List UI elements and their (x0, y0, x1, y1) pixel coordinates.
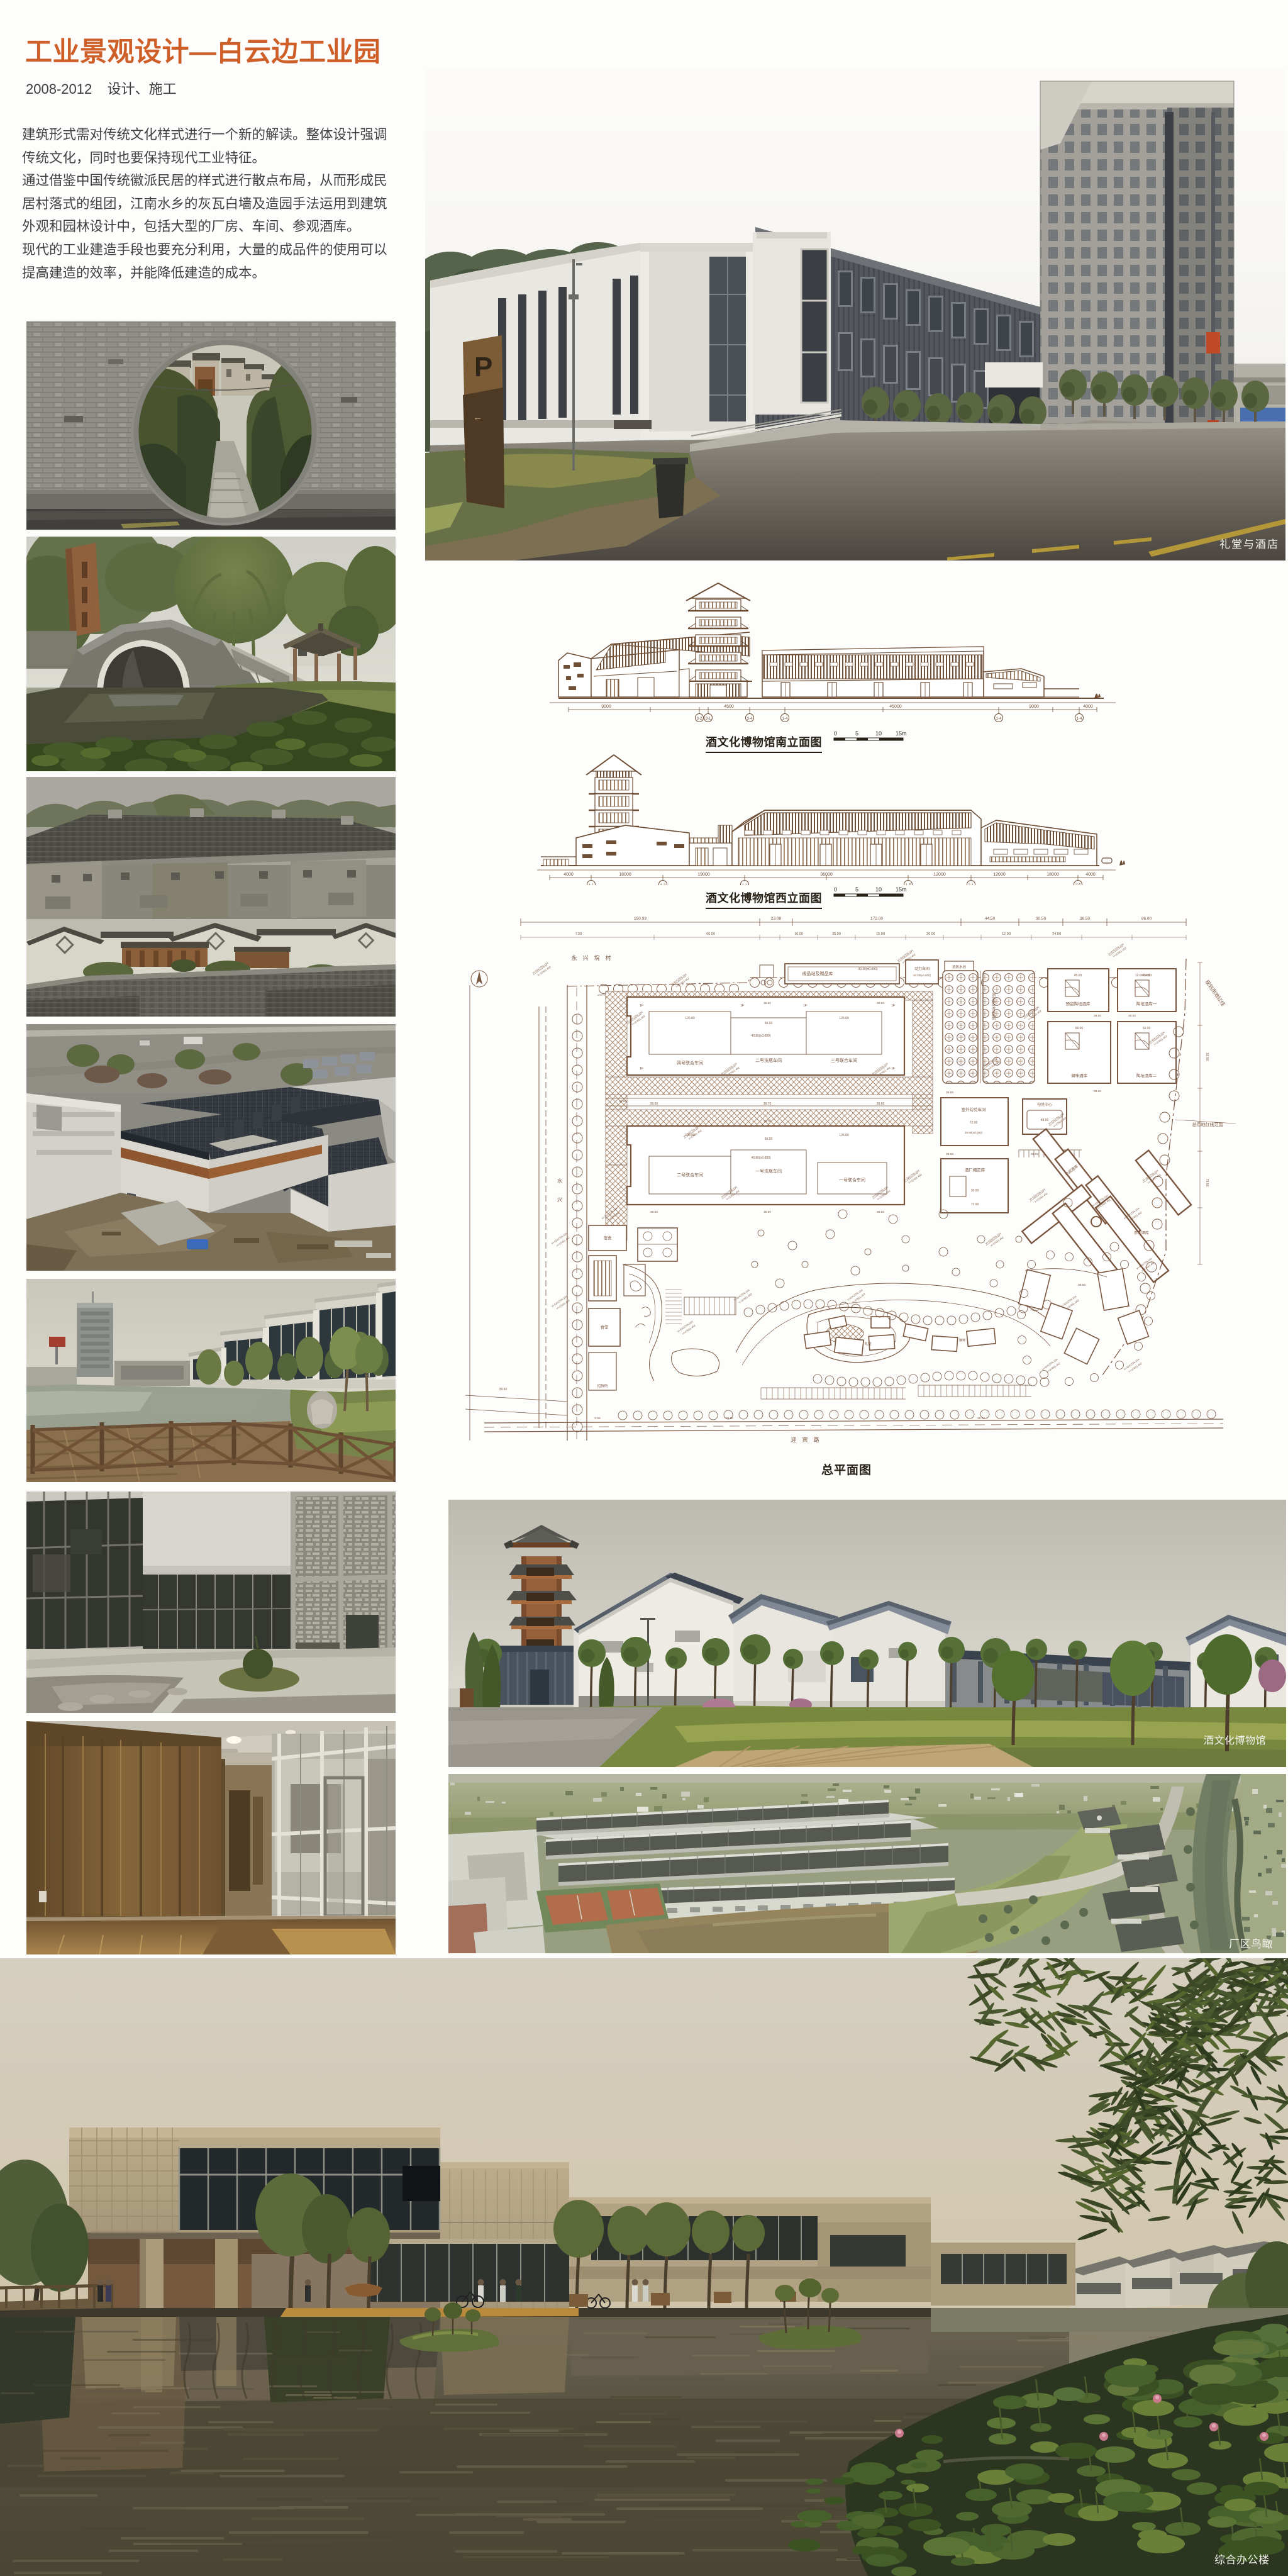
svg-text:45.00: 45.00 (1074, 974, 1082, 978)
svg-text:15.00: 15.00 (876, 932, 885, 936)
svg-text:12000: 12000 (933, 873, 946, 877)
svg-text:4000: 4000 (1085, 873, 1096, 877)
svg-text:40.80(±0.000): 40.80(±0.000) (751, 1156, 770, 1160)
svg-text:66.00: 66.00 (1143, 1027, 1151, 1030)
svg-text:消防水池: 消防水池 (952, 964, 967, 969)
svg-text:一号洗瓶车间: 一号洗瓶车间 (755, 1168, 782, 1174)
svg-text:9000: 9000 (1029, 705, 1039, 709)
svg-text:12.00: 12.00 (1002, 932, 1011, 936)
svg-text:39.60: 39.60 (877, 1001, 884, 1005)
svg-text:5: 5 (855, 886, 858, 893)
svg-text:0: 0 (834, 730, 837, 737)
svg-text:126.00: 126.00 (839, 1134, 849, 1137)
svg-text:P: P (474, 352, 492, 382)
svg-text:12000: 12000 (993, 873, 1006, 877)
svg-text:调味酒库: 调味酒库 (1071, 1073, 1088, 1078)
svg-text:39.60: 39.60 (650, 1102, 658, 1106)
svg-text:24.00: 24.00 (1052, 932, 1061, 936)
svg-text:成品站及赠品库: 成品站及赠品库 (802, 971, 833, 976)
svg-text:动力车间: 动力车间 (914, 966, 930, 971)
svg-text:食堂: 食堂 (601, 1324, 609, 1330)
svg-text:3-2: 3-2 (697, 717, 702, 721)
svg-text:规划用地红线: 规划用地红线 (1204, 979, 1227, 1007)
svg-text:4000: 4000 (1083, 705, 1093, 709)
svg-text:39.60: 39.60 (619, 1100, 626, 1103)
svg-text:23.08: 23.08 (771, 917, 782, 921)
svg-text:38.50: 38.50 (1080, 917, 1091, 921)
svg-text:86.00: 86.00 (1141, 917, 1152, 921)
svg-text:←: ← (473, 412, 482, 423)
svg-text:宿舍: 宿舍 (604, 1235, 613, 1241)
svg-text:9000: 9000 (601, 705, 611, 709)
svg-text:预留陶坛酒库: 预留陶坛酒库 (1066, 1001, 1091, 1006)
svg-text:126.00: 126.00 (685, 1017, 695, 1020)
svg-text:72.00: 72.00 (971, 1203, 979, 1207)
svg-text:二号联合车间: 二号联合车间 (677, 1172, 703, 1178)
svg-text:招待所: 招待所 (597, 1383, 608, 1388)
svg-text:39.90(±0.000): 39.90(±0.000) (965, 1131, 982, 1134)
svg-text:4-1: 4-1 (589, 884, 594, 885)
svg-text:40.00(±0.000): 40.00(±0.000) (913, 974, 931, 977)
svg-text:48.00: 48.00 (1041, 1118, 1049, 1122)
svg-text:1F: 1F (803, 1004, 807, 1008)
svg-text:79.50: 79.50 (1205, 1179, 1209, 1187)
svg-text:15m: 15m (896, 730, 907, 737)
svg-text:39.90(±0.000): 39.90(±0.000) (858, 967, 877, 971)
svg-text:39.60: 39.60 (1128, 1014, 1136, 1018)
svg-text:39.60: 39.60 (763, 1001, 771, 1005)
svg-text:2-1: 2-1 (969, 884, 974, 885)
svg-text:19000: 19000 (697, 873, 710, 877)
svg-text:39.60: 39.60 (650, 1210, 658, 1214)
svg-text:39.60: 39.60 (1094, 1090, 1101, 1093)
svg-text:15m: 15m (896, 886, 907, 893)
svg-text:室外勾兑车间: 室外勾兑车间 (962, 1107, 986, 1112)
svg-text:39.70: 39.70 (763, 1120, 771, 1124)
svg-text:1F: 1F (891, 1004, 895, 1008)
svg-text:酒厂棚定库: 酒厂棚定库 (965, 1167, 985, 1173)
svg-text:39.60: 39.60 (726, 1417, 733, 1420)
svg-text:60.00: 60.00 (765, 1137, 773, 1141)
svg-text:39.60: 39.60 (1078, 1283, 1085, 1287)
svg-text:39.65: 39.65 (946, 1091, 953, 1095)
svg-text:1F: 1F (640, 1004, 643, 1008)
svg-text:39.60: 39.60 (1094, 1014, 1101, 1018)
svg-text:2-5: 2-5 (1075, 884, 1081, 885)
svg-text:12.00 24.00: 12.00 24.00 (1135, 974, 1152, 978)
svg-text:60.00: 60.00 (765, 1022, 773, 1025)
svg-text:39.60: 39.60 (763, 1210, 771, 1214)
svg-text:66.00: 66.00 (706, 932, 715, 936)
svg-text:172.00: 172.00 (870, 917, 883, 921)
svg-text:72.00: 72.00 (970, 1121, 978, 1125)
svg-text:水: 水 (557, 1178, 562, 1184)
svg-text:四号联合车间: 四号联合车间 (677, 1060, 703, 1066)
svg-text:1-4: 1-4 (996, 717, 1002, 721)
svg-text:0: 0 (834, 886, 837, 893)
svg-text:39.65: 39.65 (1031, 1152, 1038, 1156)
svg-text:36000: 36000 (820, 873, 833, 877)
svg-text:4500: 4500 (724, 705, 734, 709)
svg-text:二号洗瓶车间: 二号洗瓶车间 (755, 1057, 782, 1063)
svg-text:礼堂: 礼堂 (864, 1341, 872, 1346)
svg-text:39.65: 39.65 (946, 1152, 953, 1156)
svg-text:参观酒库: 参观酒库 (1134, 1230, 1149, 1235)
svg-text:190.93: 190.93 (634, 917, 647, 921)
svg-text:30.50: 30.50 (1036, 917, 1046, 921)
svg-text:4-3: 4-3 (660, 884, 666, 885)
svg-text:1-1: 1-1 (742, 884, 748, 885)
svg-text:接待: 接待 (959, 1338, 965, 1342)
svg-text:1F: 1F (891, 1067, 895, 1071)
svg-text:20.00: 20.00 (926, 932, 935, 936)
svg-text:7.50: 7.50 (575, 932, 582, 936)
svg-text:92.50: 92.50 (1205, 1053, 1209, 1061)
svg-text:1-5: 1-5 (906, 884, 911, 885)
svg-text:18000: 18000 (1046, 873, 1059, 877)
svg-text:一号联合车间: 一号联合车间 (839, 1177, 865, 1183)
svg-text:永 兴 垸 村: 永 兴 垸 村 (571, 954, 611, 961)
svg-text:39.60: 39.60 (499, 1388, 508, 1391)
svg-text:16.00: 16.00 (794, 932, 803, 936)
svg-text:勾兑中心: 勾兑中心 (1037, 1102, 1052, 1107)
svg-text:原酒罐及勾兑罐区: 原酒罐及勾兑罐区 (991, 993, 996, 1021)
svg-text:66.00: 66.00 (1075, 1027, 1084, 1030)
svg-text:1F: 1F (640, 1067, 643, 1071)
svg-text:0.55: 0.55 (594, 1417, 601, 1420)
svg-text:4000: 4000 (563, 873, 574, 877)
svg-text:1-4: 1-4 (782, 717, 788, 721)
svg-text:1-4: 1-4 (1077, 717, 1082, 721)
svg-text:39.60: 39.60 (877, 1210, 884, 1214)
svg-text:45000: 45000 (889, 705, 902, 709)
svg-text:40.80(±0.000): 40.80(±0.000) (751, 1034, 770, 1038)
svg-text:陶坛酒库二: 陶坛酒库二 (1136, 1073, 1157, 1078)
svg-text:3-1: 3-1 (706, 717, 711, 721)
svg-text:10: 10 (875, 730, 882, 737)
svg-text:陶坛酒库一: 陶坛酒库一 (1136, 1001, 1157, 1006)
svg-text:30.00: 30.00 (971, 1189, 979, 1193)
svg-text:1F: 1F (740, 1004, 744, 1008)
svg-text:迎 宾 路: 迎 宾 路 (791, 1436, 819, 1443)
svg-text:35.00: 35.00 (832, 932, 841, 936)
svg-text:39.70: 39.70 (763, 1102, 772, 1106)
svg-text:三号联合车间: 三号联合车间 (831, 1057, 857, 1063)
svg-text:126.00: 126.00 (839, 1017, 849, 1020)
svg-text:44.50: 44.50 (985, 917, 996, 921)
svg-text:3-4: 3-4 (747, 717, 753, 721)
svg-text:10: 10 (875, 886, 882, 893)
svg-text:39.60: 39.60 (877, 1102, 885, 1106)
svg-text:18000: 18000 (619, 873, 631, 877)
svg-text:39.70: 39.70 (977, 1417, 985, 1420)
svg-text:5: 5 (855, 730, 858, 737)
svg-text:兴: 兴 (557, 1197, 562, 1203)
